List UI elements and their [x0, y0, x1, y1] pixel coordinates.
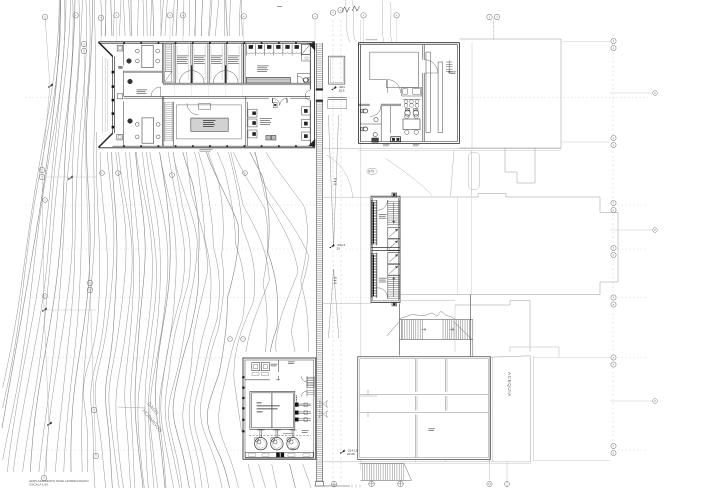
svg-text:25.6: 25.6: [339, 88, 345, 92]
svg-text:24.06: 24.06: [347, 452, 355, 456]
svg-text:ACEQUIA: ACEQUIA: [507, 372, 512, 397]
svg-text:ESCALA 1:50: ESCALA 1:50: [30, 482, 49, 486]
svg-text:25: 25: [337, 246, 341, 250]
svg-text:879: 879: [368, 170, 374, 174]
